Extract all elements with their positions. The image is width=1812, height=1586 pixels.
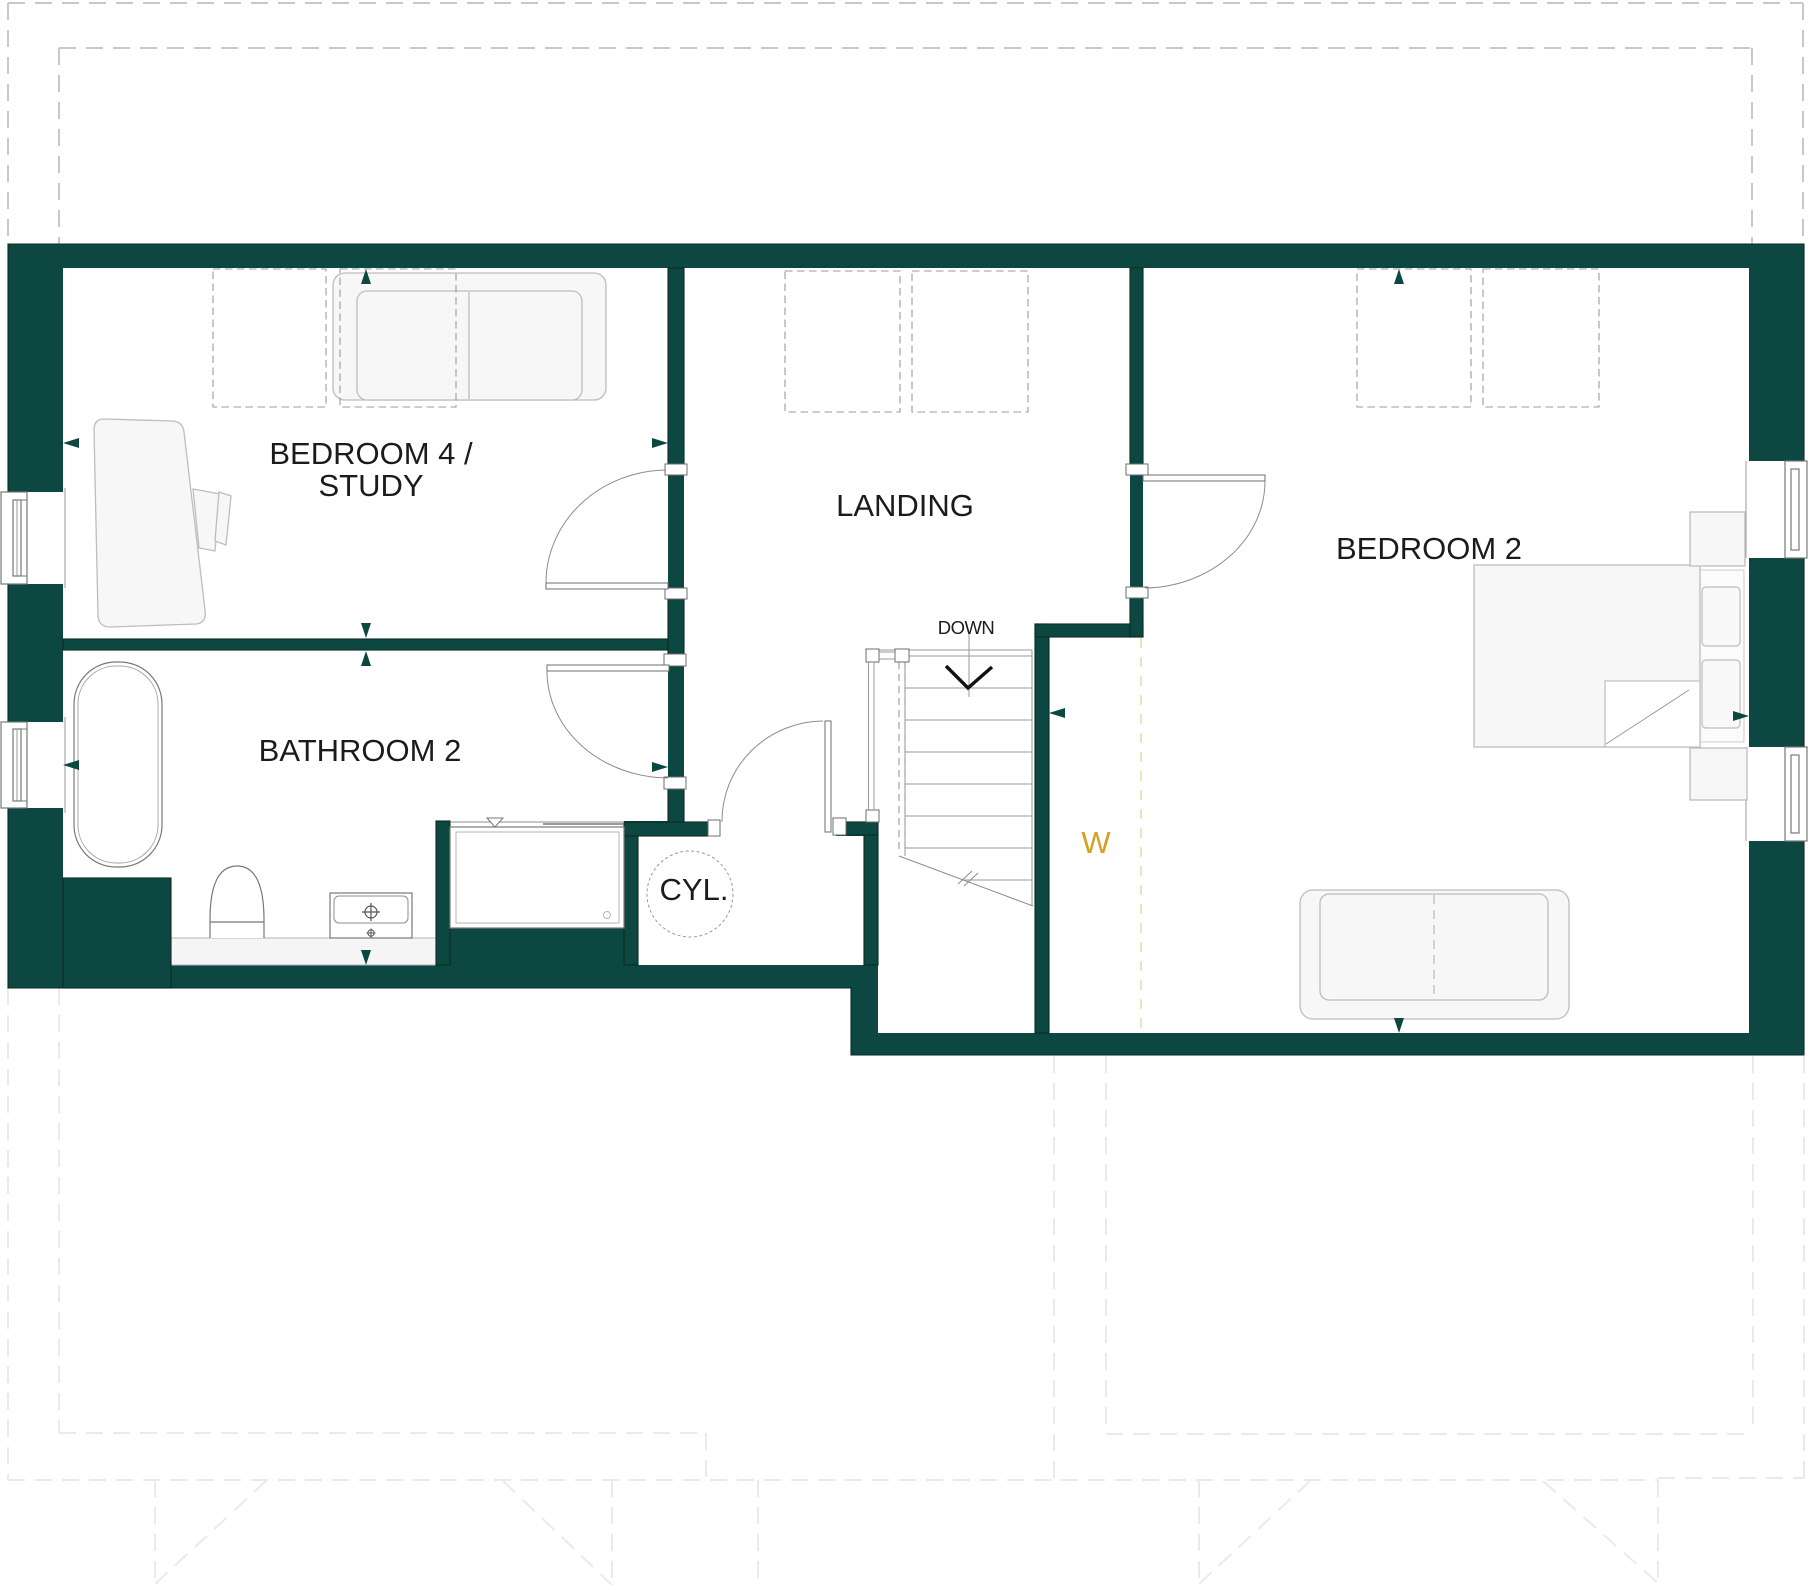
svg-text:BEDROOM 4 /: BEDROOM 4 / [269, 436, 473, 471]
svg-text:W: W [1081, 825, 1111, 860]
svg-text:BEDROOM 2: BEDROOM 2 [1336, 531, 1522, 566]
svg-text:LANDING: LANDING [836, 488, 974, 523]
svg-text:CYL.: CYL. [660, 872, 729, 907]
svg-text:STUDY: STUDY [318, 468, 423, 503]
svg-text:DOWN: DOWN [938, 617, 995, 638]
svg-text:BATHROOM 2: BATHROOM 2 [259, 733, 462, 768]
